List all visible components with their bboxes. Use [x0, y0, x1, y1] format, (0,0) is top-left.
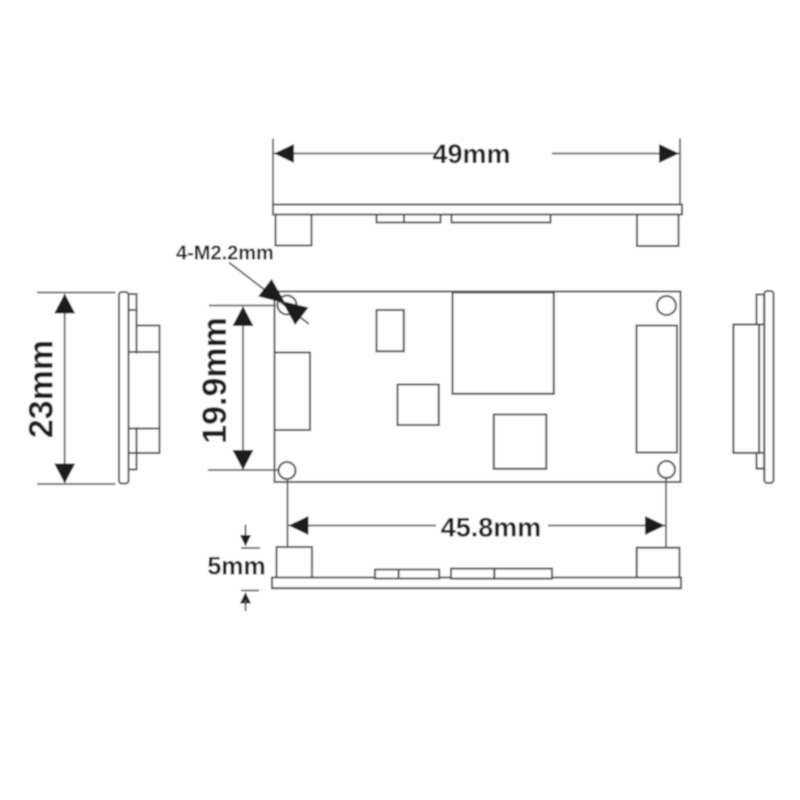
svg-text:4-M2.2mm: 4-M2.2mm: [176, 243, 274, 265]
svg-text:45.8mm: 45.8mm: [441, 513, 542, 543]
svg-text:23mm: 23mm: [23, 340, 61, 438]
svg-text:5mm: 5mm: [207, 553, 265, 581]
svg-text:19.9mm: 19.9mm: [196, 317, 234, 444]
svg-text:49mm: 49mm: [432, 139, 510, 169]
